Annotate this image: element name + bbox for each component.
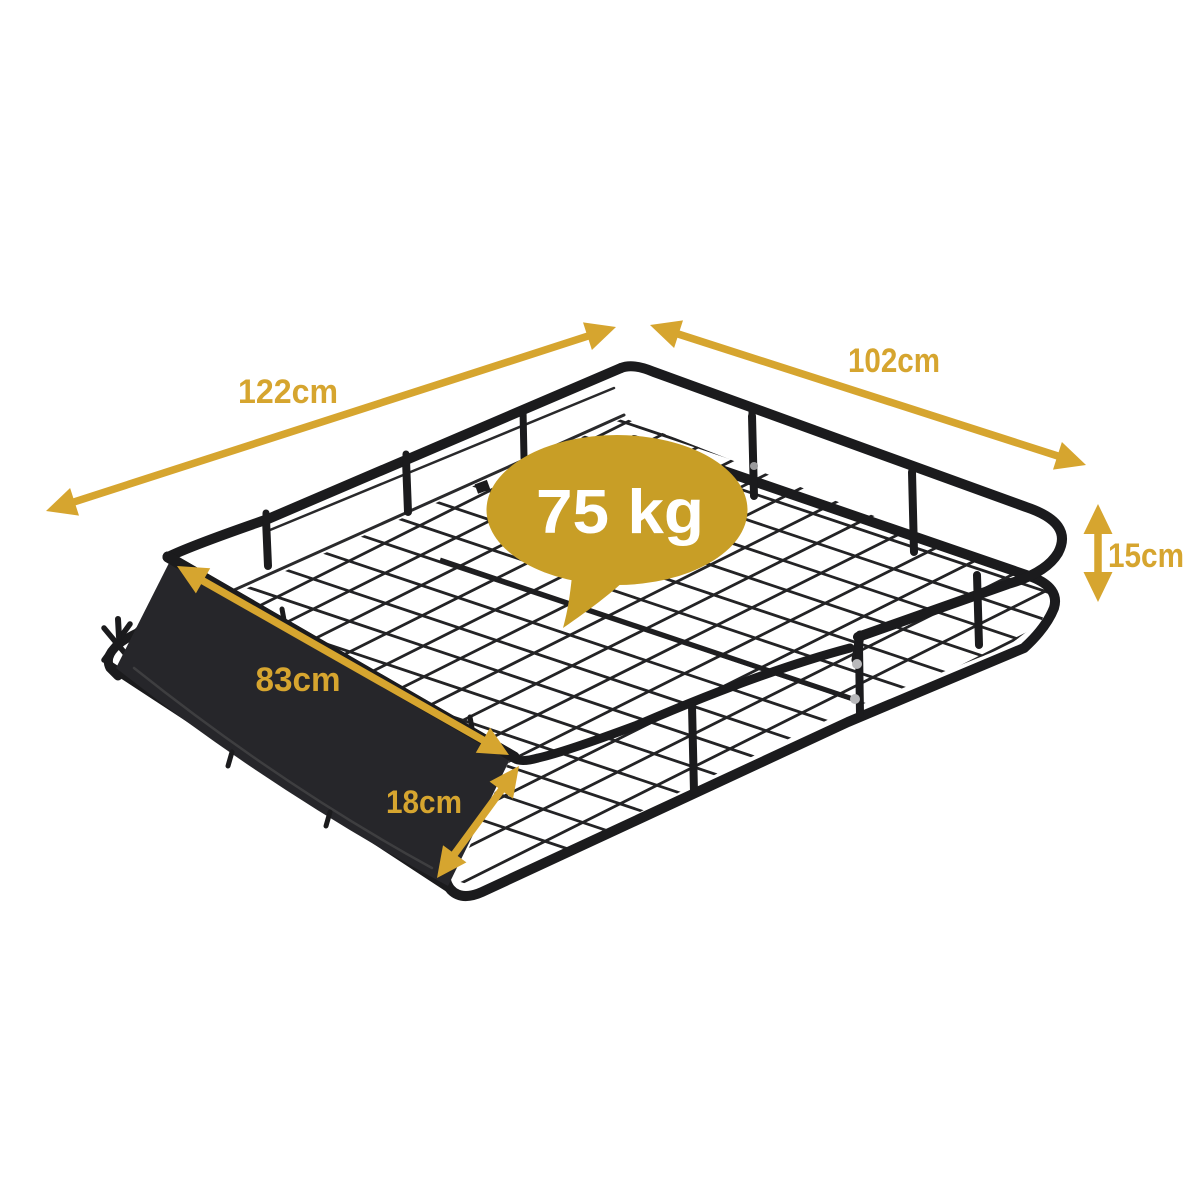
svg-text:122cm: 122cm	[238, 373, 338, 411]
svg-text:18cm: 18cm	[386, 784, 462, 820]
svg-text:102cm: 102cm	[848, 342, 940, 380]
svg-text:15cm: 15cm	[1108, 537, 1184, 575]
svg-text:75 kg: 75 kg	[536, 478, 704, 547]
svg-text:83cm: 83cm	[256, 661, 341, 699]
